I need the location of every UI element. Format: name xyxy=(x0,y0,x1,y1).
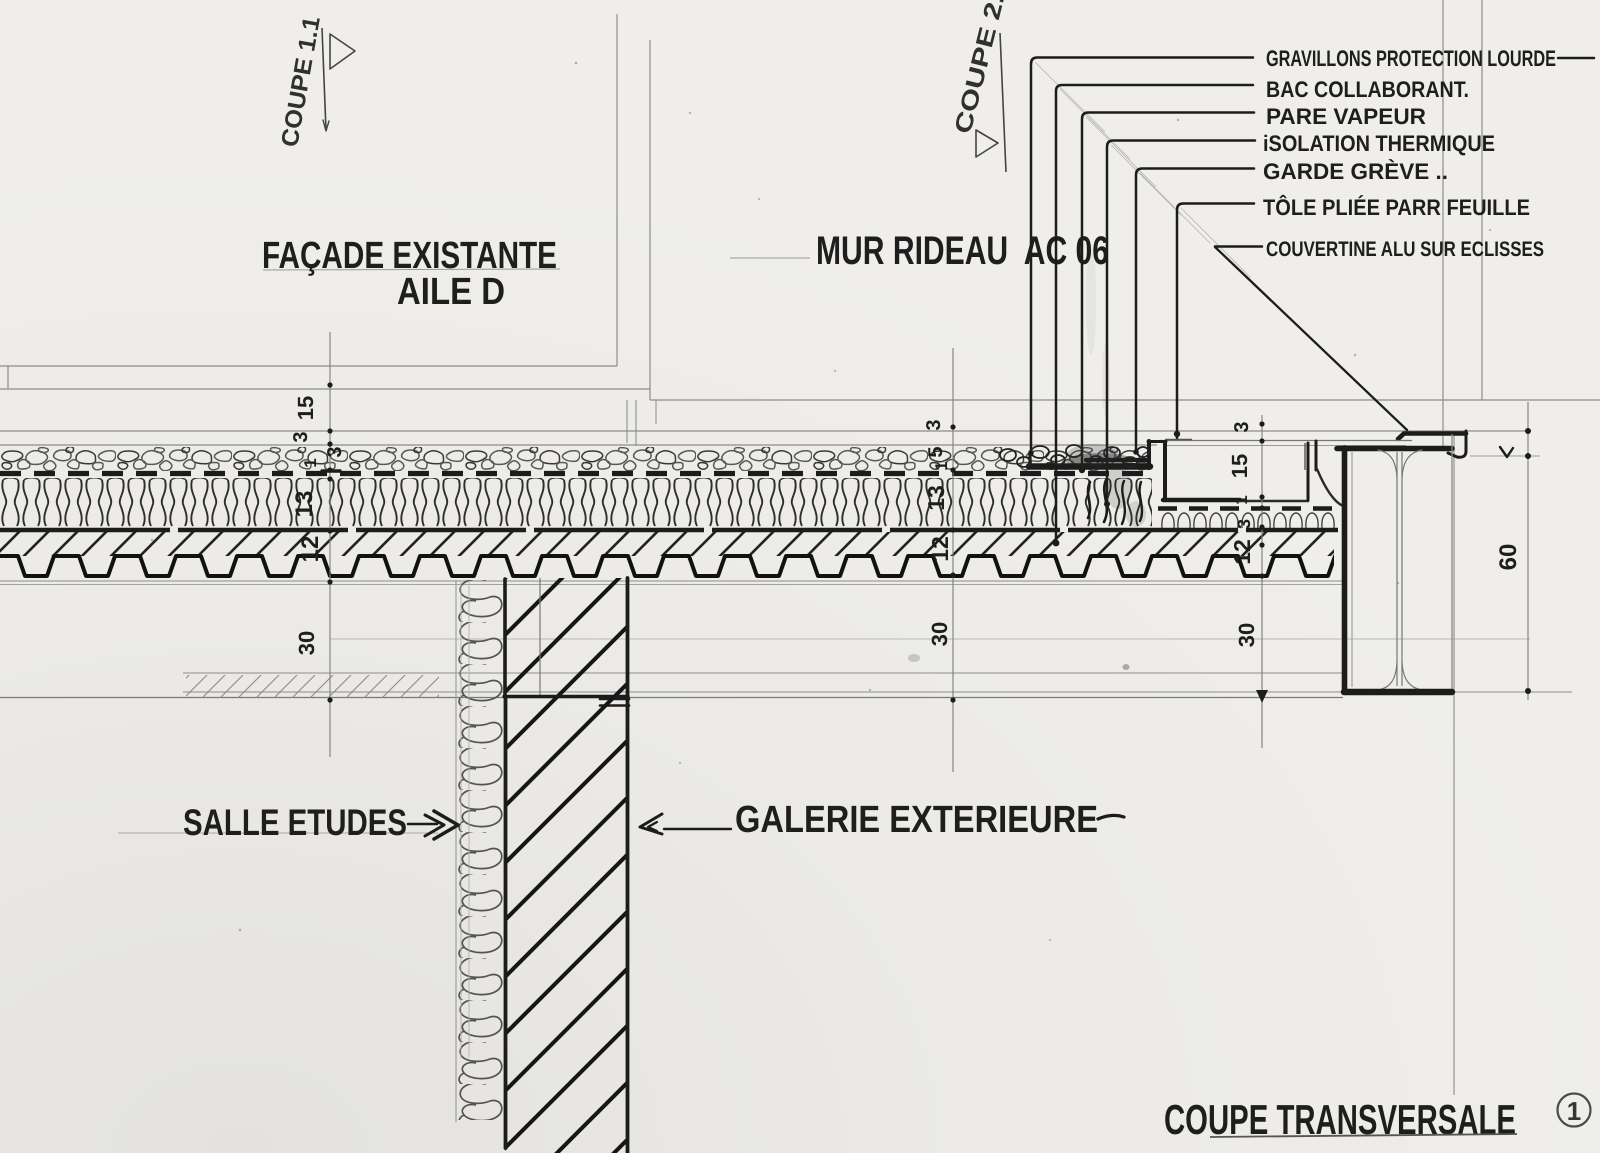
svg-text:30: 30 xyxy=(927,622,952,646)
svg-text:TÔLE PLIÉE PARR FEUILLE: TÔLE PLIÉE PARR FEUILLE xyxy=(1263,194,1530,220)
svg-text:SALLE ETUDES: SALLE ETUDES xyxy=(183,802,407,843)
svg-text:MUR RIDEAU AC 06: MUR RIDEAU AC 06 xyxy=(816,229,1109,273)
svg-text:30: 30 xyxy=(1234,623,1259,647)
svg-text:3: 3 xyxy=(1231,421,1253,432)
svg-text:15: 15 xyxy=(1227,454,1252,478)
svg-text:15: 15 xyxy=(293,396,318,420)
svg-text:1: 1 xyxy=(1232,495,1251,504)
svg-text:3: 3 xyxy=(290,431,312,442)
svg-text:BAC COLLABORANT.: BAC COLLABORANT. xyxy=(1266,77,1469,102)
svg-text:3: 3 xyxy=(324,446,346,457)
svg-text:3: 3 xyxy=(923,419,945,430)
svg-text:60: 60 xyxy=(1495,544,1522,571)
svg-text:13: 13 xyxy=(291,491,318,518)
svg-text:12: 12 xyxy=(1229,539,1255,565)
svg-text:1: 1 xyxy=(932,461,951,470)
svg-text:AILE D: AILE D xyxy=(397,271,505,313)
svg-text:12: 12 xyxy=(927,536,953,562)
svg-text:12: 12 xyxy=(297,536,324,563)
svg-text:5: 5 xyxy=(925,446,947,457)
svg-text:GALERIE EXTERIEURE: GALERIE EXTERIEURE xyxy=(735,799,1098,841)
svg-text:30: 30 xyxy=(294,631,319,655)
svg-text:1: 1 xyxy=(301,458,320,467)
svg-text:GARDE GRÈVE ..: GARDE GRÈVE .. xyxy=(1263,159,1448,184)
svg-text:PARE VAPEUR: PARE VAPEUR xyxy=(1266,104,1426,129)
svg-text:3: 3 xyxy=(1234,519,1254,529)
svg-text:13: 13 xyxy=(923,485,949,511)
svg-text:iSOLATION THERMIQUE: iSOLATION THERMIQUE xyxy=(1263,131,1495,156)
svg-text:1: 1 xyxy=(1567,1096,1581,1126)
svg-text:COUVERTINE ALU SUR ECLISSES: COUVERTINE ALU SUR ECLISSES xyxy=(1266,238,1544,261)
svg-text:GRAVILLONS PROTECTION LOURDE: GRAVILLONS PROTECTION LOURDE xyxy=(1266,46,1556,71)
